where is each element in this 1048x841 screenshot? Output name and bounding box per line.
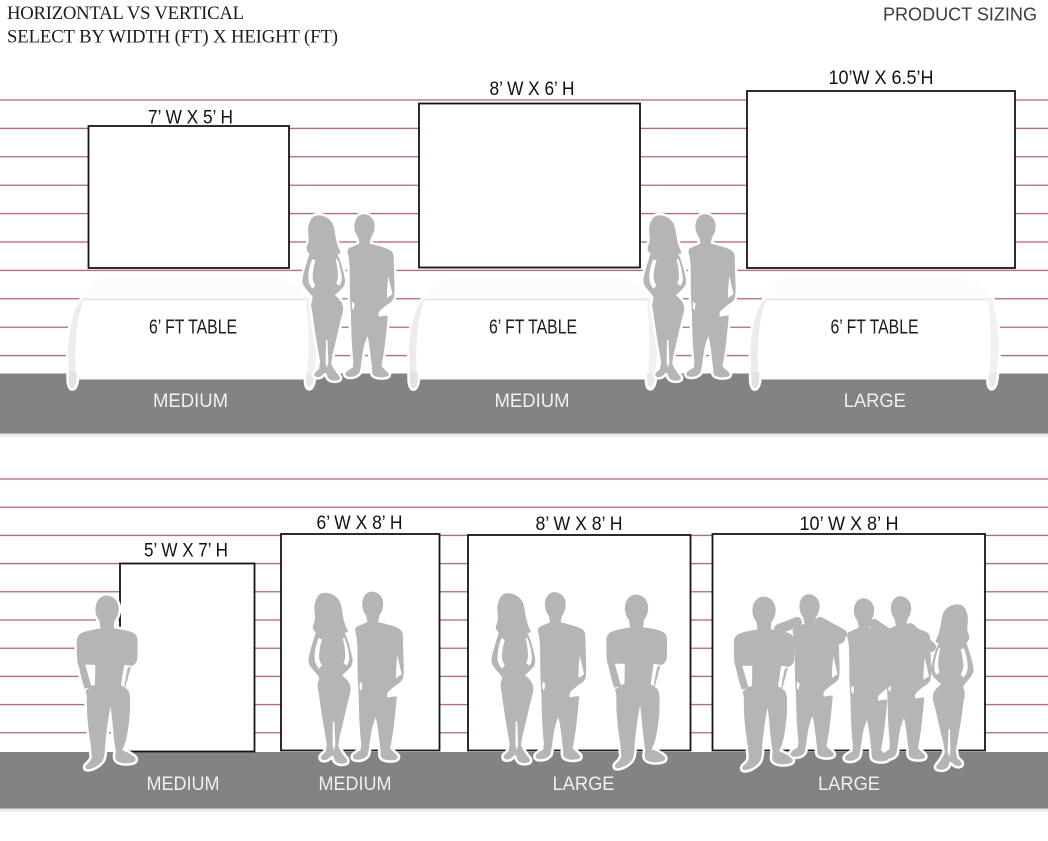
svg-text:MEDIUM: MEDIUM (147, 773, 220, 795)
svg-text:10’W X 6.5’H: 10’W X 6.5’H (829, 67, 934, 89)
svg-text:MEDIUM: MEDIUM (495, 390, 570, 412)
svg-text:LARGE: LARGE (818, 773, 880, 795)
svg-text:HORIZONTAL VS VERTICAL: HORIZONTAL VS VERTICAL (7, 3, 244, 24)
svg-text:6’ FT TABLE: 6’ FT TABLE (149, 317, 237, 339)
svg-text:MEDIUM: MEDIUM (153, 390, 228, 412)
svg-text:7’ W X 5’ H: 7’ W X 5’ H (148, 107, 233, 129)
svg-text:6’ FT TABLE: 6’ FT TABLE (831, 317, 919, 339)
svg-text:8’ W X 6’ H: 8’ W X 6’ H (490, 78, 575, 100)
svg-text:MEDIUM: MEDIUM (319, 773, 392, 795)
svg-text:8’ W X 8’ H: 8’ W X 8’ H (536, 513, 623, 535)
svg-text:PRODUCT SIZING: PRODUCT SIZING (883, 4, 1037, 25)
svg-text:6’ FT TABLE: 6’ FT TABLE (489, 317, 577, 339)
svg-text:10’ W X 8’ H: 10’ W X 8’ H (800, 513, 899, 535)
svg-text:LARGE: LARGE (553, 773, 615, 795)
svg-text:5’ W X 7’ H: 5’ W X 7’ H (144, 540, 228, 562)
svg-text:SELECT BY WIDTH (FT) X HEIGHT: SELECT BY WIDTH (FT) X HEIGHT (FT) (7, 27, 338, 48)
svg-text:6’ W X 8’ H: 6’ W X 8’ H (317, 512, 403, 534)
svg-text:LARGE: LARGE (844, 390, 906, 412)
